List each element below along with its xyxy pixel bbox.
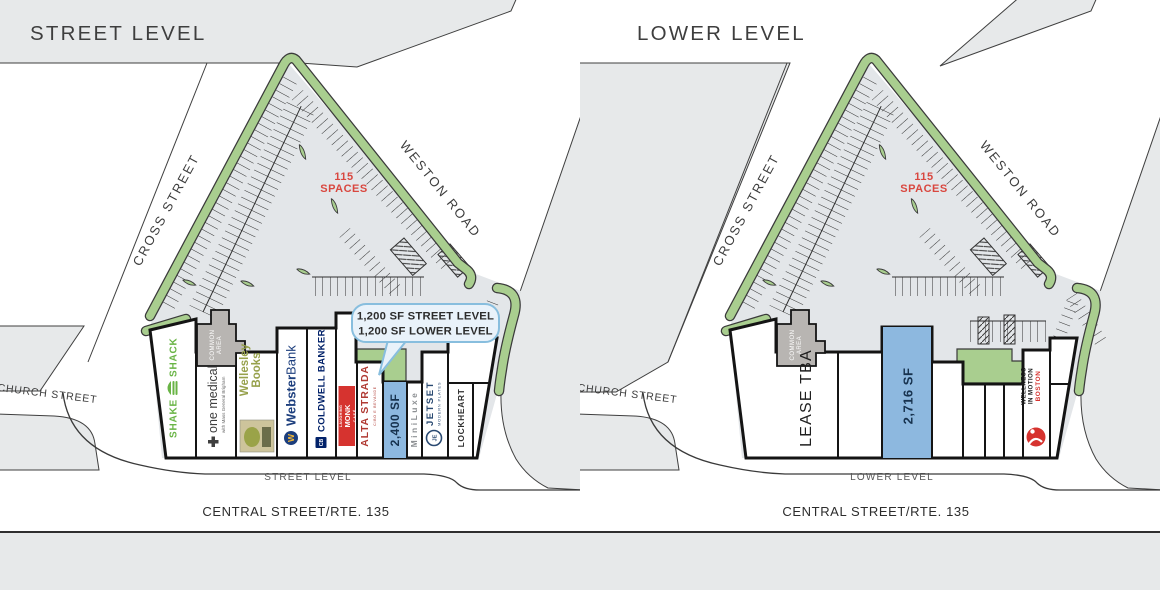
church-street-upper-parcel xyxy=(0,326,84,391)
tenant-coldwell-banker[interactable]: CB COLDWELL BANKER xyxy=(316,329,328,448)
street-level-panel: CROSS STREET WESTON ROAD CHURCH STREET 1… xyxy=(0,0,580,590)
available-unit-lease-tba[interactable]: LEASE TBA xyxy=(798,349,815,447)
tenant-lockheart[interactable]: LOCKHEART xyxy=(456,388,466,447)
parking-count: 115 xyxy=(914,171,933,183)
tenant-miniluxe[interactable]: MiniLuxe xyxy=(409,391,419,448)
svg-text:W: W xyxy=(286,433,296,442)
building-level-label: STREET LEVEL xyxy=(264,472,352,483)
svg-text:SHAKE: SHAKE xyxy=(169,399,180,438)
tenant-laughing-monk[interactable]: LAUGHING MONK C A F É xyxy=(339,386,358,446)
svg-text:Books: Books xyxy=(251,352,263,387)
central-street-south-band xyxy=(580,532,1160,590)
svg-text:BOSTON: BOSTON xyxy=(1035,371,1042,402)
wellesley-painting-thumbnail xyxy=(240,420,274,452)
webster-bank-monogram-icon: W xyxy=(284,431,298,445)
svg-text:CIBO E BEVANDE: CIBO E BEVANDE xyxy=(373,386,377,426)
svg-text:WebsterBank: WebsterBank xyxy=(284,345,299,426)
svg-text:WELLNESS: WELLNESS xyxy=(1021,367,1028,405)
svg-text:ALTA STRADA: ALTA STRADA xyxy=(359,365,371,447)
wellness-person-icon xyxy=(1027,428,1046,447)
svg-text:MiniLuxe: MiniLuxe xyxy=(409,391,419,448)
svg-text:LOCKHEART: LOCKHEART xyxy=(456,388,466,447)
svg-text:1,200 SF LOWER LEVEL: 1,200 SF LOWER LEVEL xyxy=(358,326,493,338)
svg-text:JE: JE xyxy=(433,434,439,441)
svg-text:2,400 SF: 2,400 SF xyxy=(388,394,402,447)
tenant-jetset[interactable]: JE JETSET MODERN PLATES xyxy=(425,381,442,445)
available-unit-2716[interactable]: 2,716 SF xyxy=(901,368,916,425)
lower-level-panel: CROSS STREET WESTON ROAD CHURCH STREET 1… xyxy=(580,0,1160,590)
svg-text:JETSET: JETSET xyxy=(425,381,436,426)
building-level-label: LOWER LEVEL xyxy=(850,472,934,483)
panel-title: STREET LEVEL xyxy=(30,22,206,45)
church-street-label: CHURCH STREET xyxy=(580,382,678,406)
available-unit-2400[interactable]: 2,400 SF xyxy=(388,394,402,447)
top-parcel xyxy=(940,0,1098,66)
svg-text:MODERN PLATES: MODERN PLATES xyxy=(437,382,442,426)
parking-count: 115 xyxy=(334,171,353,183)
central-street-label: CENTRAL STREET/RTE. 135 xyxy=(202,504,389,519)
panel-title: LOWER LEVEL xyxy=(637,22,806,45)
svg-text:COMMON: COMMON xyxy=(210,330,216,361)
central-street-label: CENTRAL STREET/RTE. 135 xyxy=(782,504,969,519)
church-street-lower-parcel xyxy=(0,414,99,470)
svg-text:with Mass General Brigham: with Mass General Brigham xyxy=(221,376,226,433)
svg-text:Wellesley: Wellesley xyxy=(239,343,251,396)
church-street-label: CHURCH STREET xyxy=(0,382,98,406)
svg-text:SHACK: SHACK xyxy=(169,337,180,377)
parking-count-label: SPACES xyxy=(900,183,947,195)
svg-text:MONK: MONK xyxy=(343,404,352,427)
svg-text:LEASE TBA: LEASE TBA xyxy=(798,349,815,447)
svg-text:one medical: one medical xyxy=(206,366,220,433)
svg-text:COMMON: COMMON xyxy=(790,330,796,361)
svg-text:COLDWELL BANKER: COLDWELL BANKER xyxy=(317,329,328,432)
coldwell-banker-monogram-icon: CB xyxy=(316,437,327,448)
svg-text:1,200 SF STREET LEVEL: 1,200 SF STREET LEVEL xyxy=(357,311,494,323)
svg-text:C A F É: C A F É xyxy=(352,409,357,422)
central-street-south-band xyxy=(0,532,580,590)
jetset-monogram-icon: JE xyxy=(427,431,442,446)
svg-text:AREA: AREA xyxy=(217,336,223,354)
parking-count-label: SPACES xyxy=(320,183,367,195)
site-plan: CROSS STREET WESTON ROAD CHURCH STREET 1… xyxy=(0,0,1160,590)
svg-text:2,716 SF: 2,716 SF xyxy=(901,368,916,425)
church-street-lower-parcel xyxy=(580,414,679,470)
svg-text:IN MOTION: IN MOTION xyxy=(1028,368,1035,404)
svg-text:CB: CB xyxy=(319,439,325,447)
